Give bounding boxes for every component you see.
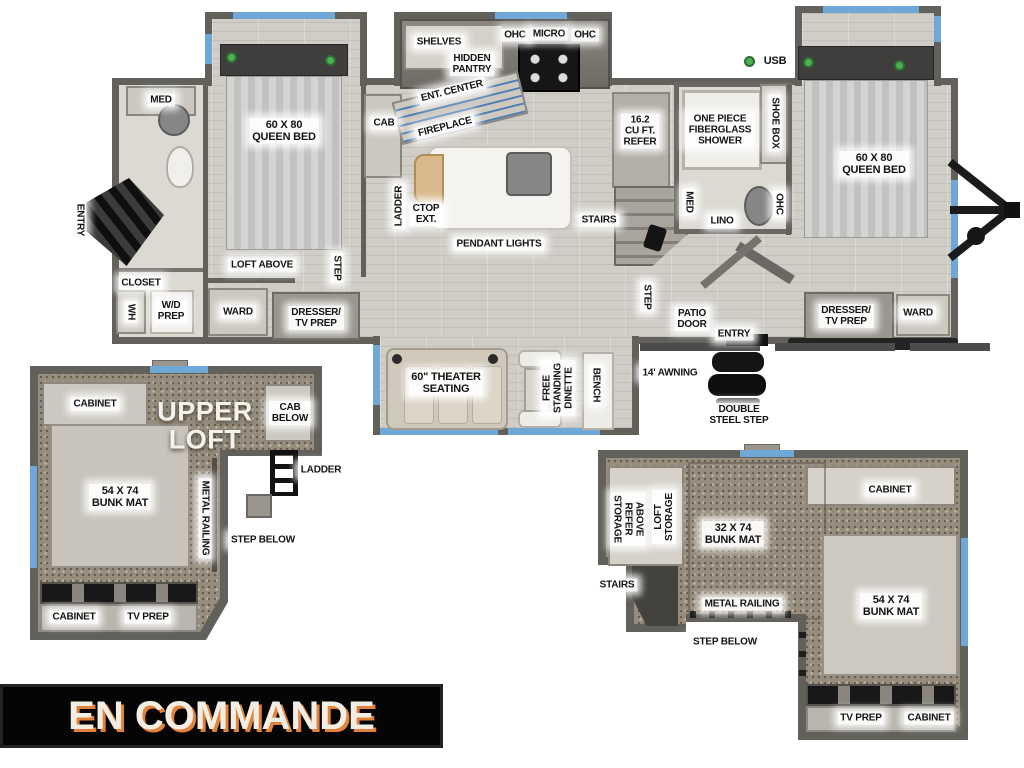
label-usb: USB: [761, 54, 790, 68]
label-dinette: FREE STANDING DINETTE: [541, 360, 576, 416]
kitchen-sink: [506, 152, 552, 196]
label-double-steel-step: DOUBLE STEEL STEP: [707, 403, 772, 427]
led-indicator-icon: [803, 57, 814, 68]
label-loftr-step-below: STEP BELOW: [690, 636, 760, 649]
label-upper-loft: UPPER LOFT: [157, 398, 253, 453]
label-cab-below: CAB BELOW: [269, 401, 311, 425]
label-shower: ONE PIECE FIBERGLASS SHOWER: [686, 113, 754, 148]
led-indicator-icon: [894, 60, 905, 71]
label-ward-right: WARD: [900, 307, 936, 320]
label-wh: WH: [125, 301, 138, 323]
label-bunk-mat-32: 32 X 74 BUNK MAT: [702, 521, 764, 547]
headboard-right: [798, 46, 934, 80]
trailer-hitch-icon: [946, 150, 1024, 270]
window-strip-icon: [961, 538, 968, 646]
label-patio-door: PATIO DOOR: [674, 307, 709, 331]
label-bunk-mat-54: 54 X 74 BUNK MAT: [860, 593, 922, 619]
label-queen-bed-right: 60 X 80 QUEEN BED: [839, 151, 909, 177]
loft-base-slots: [806, 684, 956, 706]
label-micro: MICRO: [530, 28, 568, 41]
label-bench: BENCH: [590, 365, 603, 406]
bath-sink-left: [158, 104, 190, 136]
usb-led-icon: [744, 56, 755, 67]
label-entry-left: ENTRY: [74, 201, 87, 240]
ladder-icon: [270, 450, 298, 496]
window-strip-icon: [150, 366, 208, 373]
status-banner-text: EN COMMANDE: [68, 694, 375, 739]
label-loftl-bunk-mat: 54 X 74 BUNK MAT: [89, 484, 151, 510]
cupholder-icon: [392, 354, 402, 364]
toilet: [166, 146, 194, 188]
window-strip-icon: [205, 34, 212, 64]
label-med-mid: MED: [683, 188, 696, 216]
status-banner: EN COMMANDE: [0, 684, 443, 748]
closet-wall: [119, 268, 203, 272]
label-loftr-stairs: STAIRS: [597, 579, 638, 592]
metal-railing-bar: [799, 620, 806, 676]
window-strip-icon: [233, 12, 335, 19]
label-above-refer-storage: ABOVE REFER STORAGE: [611, 492, 646, 546]
window-strip-icon: [30, 466, 37, 568]
label-loftr-cabinet-bottom: CABINET: [904, 712, 953, 725]
awning-bar: [640, 343, 990, 351]
wall: [786, 85, 791, 235]
label-ctop-ext: CTOP EXT.: [410, 202, 443, 226]
label-awning: 14' AWNING: [639, 367, 700, 380]
bath-sink-mid: [744, 186, 774, 226]
label-loftr-tv-prep: TV PREP: [837, 712, 884, 725]
countertop-extension: [414, 154, 444, 204]
label-lino: LINO: [707, 215, 736, 228]
label-loft-storage: LOFT STORAGE: [652, 490, 676, 544]
label-shoe-box: SHOE BOX: [769, 94, 782, 151]
queen-bed-left: [226, 76, 342, 250]
window-strip-icon: [495, 12, 567, 19]
label-loftl-tv-prep: TV PREP: [124, 611, 171, 624]
steel-step-icon: [708, 374, 766, 396]
label-ohc-mid: OHC: [773, 190, 786, 218]
label-refer: 16.2 CU FT. REFER: [621, 114, 660, 149]
window-strip-icon: [934, 16, 941, 42]
label-wd-prep: W/D PREP: [155, 299, 187, 323]
label-queen-bed-left: 60 X 80 QUEEN BED: [249, 118, 319, 144]
label-closet: CLOSET: [118, 277, 163, 290]
label-ladder-kitchen: LADDER: [393, 183, 406, 229]
window-strip-icon: [823, 6, 919, 13]
label-loftl-metal-railing: METAL RAILING: [199, 478, 212, 559]
label-stairs-main: STAIRS: [579, 214, 620, 227]
label-shelves: SHELVES: [414, 36, 465, 49]
wall: [203, 278, 295, 283]
label-ward-left: WARD: [220, 306, 256, 319]
metal-railing-bar: [690, 611, 800, 618]
led-indicator-icon: [226, 52, 237, 63]
label-dresser-right: DRESSER/ TV PREP: [818, 304, 874, 328]
rv-floorplan-canvas: MED ENTRY CLOSET WH W/D PREP 60 X 80 QUE…: [0, 0, 1024, 768]
label-step-right: STEP: [641, 281, 654, 312]
label-pendant-lights: PENDANT LIGHTS: [454, 238, 545, 251]
label-loftr-cabinet-top: CABINET: [865, 484, 914, 497]
stove-icon: [518, 44, 580, 92]
label-ohc-right: OHC: [571, 29, 599, 42]
label-loft-above: LOFT ABOVE: [228, 259, 296, 272]
label-hidden-pantry: HIDDEN PANTRY: [450, 52, 495, 76]
label-loftl-cabinet-top: CABINET: [70, 398, 119, 411]
label-loftl-ladder: LADDER: [298, 464, 344, 477]
label-theater-seating: 60" THEATER SEATING: [408, 370, 483, 396]
label-dresser-left: DRESSER/ TV PREP: [288, 306, 344, 330]
led-indicator-icon: [325, 55, 336, 66]
window-strip-icon: [740, 450, 794, 457]
label-ohc-left: OHC: [501, 29, 529, 42]
label-loftl-cabinet-bottom: CABINET: [49, 611, 98, 624]
metal-railing-bar: [212, 458, 217, 572]
label-med-left: MED: [147, 94, 175, 107]
label-loftl-step-below: STEP BELOW: [228, 534, 298, 547]
step-below-box: [246, 494, 272, 518]
label-loftr-metal-railing: METAL RAILING: [702, 598, 783, 611]
label-step-left: STEP: [331, 252, 344, 283]
label-entry-right: ENTRY: [715, 328, 754, 341]
loft-base-slots: [40, 582, 198, 604]
steel-step-icon: [712, 352, 764, 372]
cupholder-icon: [488, 354, 498, 364]
window-strip-icon: [373, 345, 380, 405]
label-cab: CAB: [370, 117, 397, 130]
